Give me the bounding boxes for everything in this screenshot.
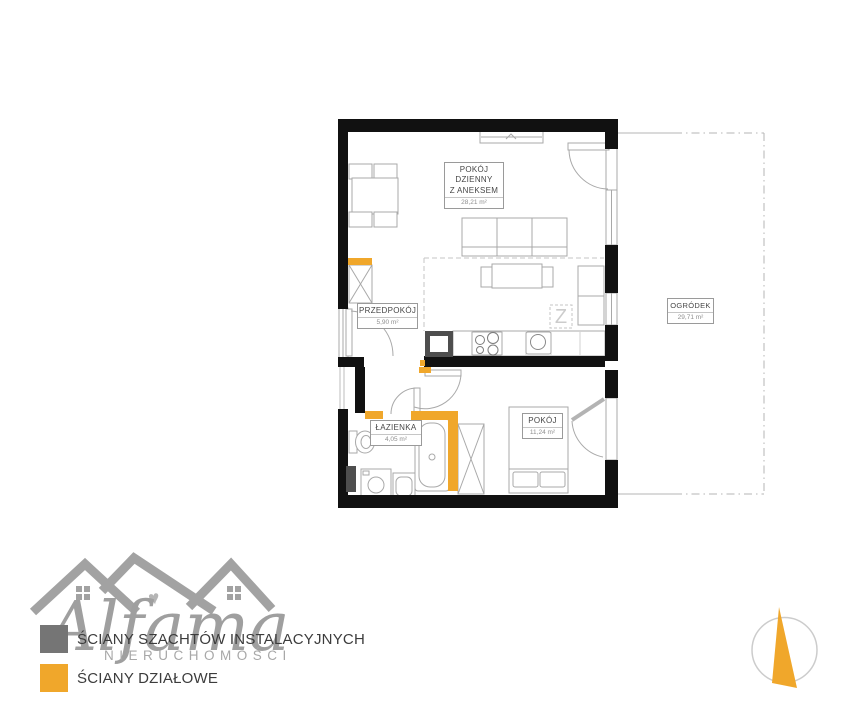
wall-niche-lines xyxy=(340,367,344,409)
burner xyxy=(488,345,498,355)
legend-label: ŚCIANY SZACHTÓW INSTALACYJNYCH xyxy=(77,631,365,648)
sofa xyxy=(462,218,567,256)
partition-bath-left xyxy=(365,411,383,419)
wall-left-mid-h xyxy=(338,357,364,367)
room-area: 4,05 m² xyxy=(371,435,421,445)
bedroom-balcony-arc xyxy=(572,421,603,457)
room-name: PRZEDPOKÓJ xyxy=(358,304,417,318)
legend-item-partition-walls: ŚCIANY DZIAŁOWE xyxy=(40,664,218,692)
wall-left-upper xyxy=(338,119,348,309)
wall-divider xyxy=(424,356,605,367)
bathroom-door-leaf xyxy=(414,388,420,414)
room-label-hallway: PRZEDPOKÓJ 5,90 m² xyxy=(357,303,418,329)
partition-mark-2 xyxy=(420,360,425,366)
room-label-garden: OGRÓDEK 29,71 m² xyxy=(667,298,714,324)
dining-chair xyxy=(374,164,397,179)
bathroom-shaft xyxy=(346,466,356,492)
burner xyxy=(477,347,484,354)
bed-pillow xyxy=(540,472,565,487)
furniture-living xyxy=(349,130,604,325)
corridor-door-arc xyxy=(414,374,461,409)
room-label-bedroom: POKÓJ 11,24 m² xyxy=(522,413,563,439)
room-name: ŁAZIENKA xyxy=(371,421,421,435)
compass xyxy=(752,607,817,688)
partition-hall xyxy=(348,258,372,265)
room-label-bathroom: ŁAZIENKA 4,05 m² xyxy=(370,420,422,446)
coffee-table xyxy=(492,264,542,288)
room-name-line: DZIENNY xyxy=(446,175,502,185)
wall-right-4 xyxy=(605,370,618,398)
partition-mark-1 xyxy=(419,367,431,373)
bathtub-drain xyxy=(429,454,435,460)
room-name: OGRÓDEK xyxy=(668,299,713,313)
room-label-living: POKÓJ DZIENNY Z ANEKSEM 28,21 m² xyxy=(444,162,504,209)
legend-label: ŚCIANY DZIAŁOWE xyxy=(77,670,218,687)
washer-drum xyxy=(368,477,384,493)
room-area: 5,90 m² xyxy=(358,318,417,328)
room-name: POKÓJ xyxy=(523,414,562,428)
side-chair xyxy=(542,267,553,287)
wall-left-lower xyxy=(338,409,348,508)
room-name-line: POKÓJ xyxy=(446,165,502,175)
partition-bath-right xyxy=(448,411,458,491)
floor-plan-drawing: Z xyxy=(0,0,865,717)
kitchen-shaft-inner xyxy=(430,336,448,352)
legend-swatch-partition xyxy=(40,664,68,692)
wall-right-2 xyxy=(605,245,618,293)
bath-sink-bowl xyxy=(396,477,412,496)
room-area: 28,21 m² xyxy=(445,198,503,208)
floor-plan-page: Z xyxy=(0,0,865,717)
wall-bottom xyxy=(338,495,618,508)
sink-bowl xyxy=(531,335,546,350)
dining-chair xyxy=(349,212,372,227)
legend-item-shaft-walls: ŚCIANY SZACHTÓW INSTALACYJNYCH xyxy=(40,625,365,653)
room-name: POKÓJ DZIENNY Z ANEKSEM xyxy=(445,163,503,198)
washer-panel xyxy=(363,471,369,475)
balcony-door-arc xyxy=(569,150,608,189)
dining-chair xyxy=(374,212,397,227)
dining-chair xyxy=(349,164,372,179)
wall-top xyxy=(338,119,618,132)
dishwasher-label: Z xyxy=(555,306,567,328)
wall-right-1 xyxy=(605,119,618,149)
entrance-door-leaf xyxy=(346,309,352,356)
room-area: 11,24 m² xyxy=(523,428,562,438)
side-chair xyxy=(481,267,492,287)
wall-left-mid-v xyxy=(355,367,365,413)
burner xyxy=(476,336,485,345)
room-area: 29,71 m² xyxy=(668,313,713,323)
bedroom-balcony-leaf xyxy=(572,399,604,420)
wall-right-3 xyxy=(605,325,618,361)
legend-swatch-shaft xyxy=(40,625,68,653)
bathroom-door-arc xyxy=(391,388,417,414)
burner xyxy=(488,333,499,344)
bed-pillow xyxy=(513,472,538,487)
wall-right-5 xyxy=(605,460,618,508)
dining-table xyxy=(352,178,398,214)
bedroom-balcony-frame xyxy=(606,398,617,460)
room-name-line: Z ANEKSEM xyxy=(446,186,502,196)
balcony-door-leaf xyxy=(568,143,609,150)
balcony-door-frame xyxy=(606,148,617,190)
